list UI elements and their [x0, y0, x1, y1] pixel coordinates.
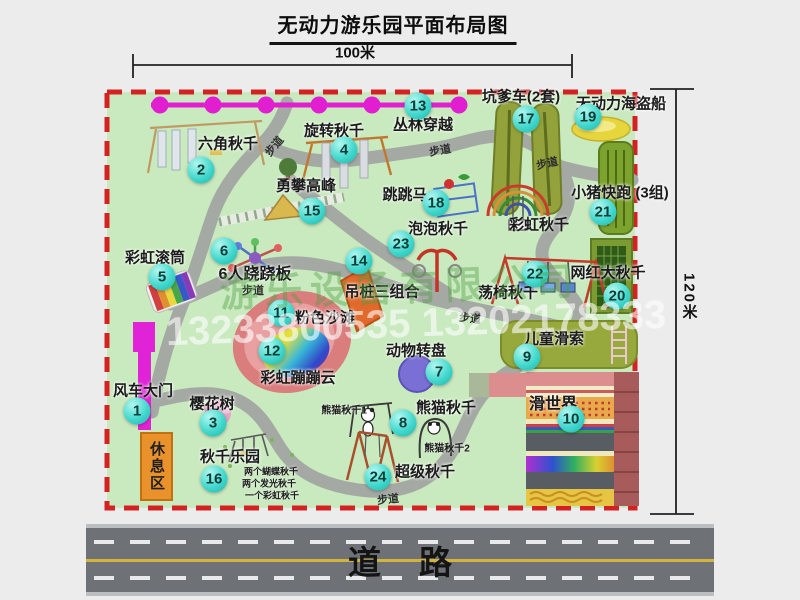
pirate-ship-structure: [572, 117, 630, 141]
dimension-height-label: 120米: [679, 273, 700, 321]
piggy-run-strip: [599, 142, 633, 234]
dimension-width-label: 100米: [335, 42, 375, 63]
rest-area-box: 休息区: [140, 432, 173, 501]
park-layout-plan: 风车大门1六角秋千2樱花树3旋转秋千4彩虹滚筒56人跷跷板6动物转盘7熊猫秋千8…: [0, 0, 800, 600]
road-label: 道路: [86, 528, 714, 592]
page-title: 无动力游乐园平面布局图: [270, 9, 517, 45]
rest-area-label: 休息区: [146, 441, 167, 492]
animal-turntable-structure: [399, 356, 435, 392]
road-strip: 道路: [86, 524, 714, 596]
